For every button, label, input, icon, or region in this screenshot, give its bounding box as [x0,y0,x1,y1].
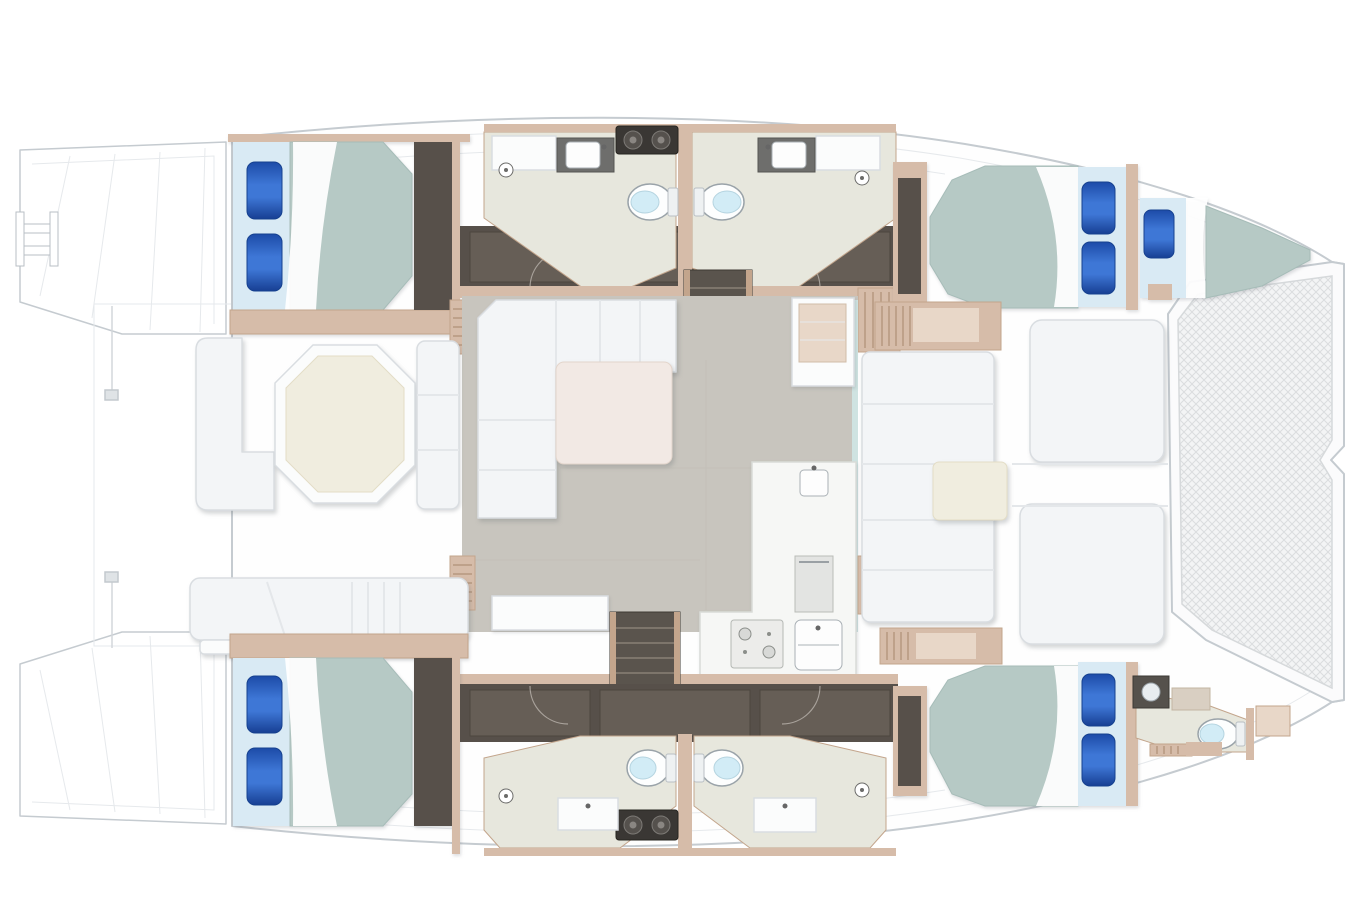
appliance-knob-center [630,822,637,829]
foredeck-hatch-starboard [880,628,1002,664]
toilet-lid [714,757,740,779]
cabin-wall [452,656,460,854]
pillow [1082,734,1115,786]
nav-cabinet [792,298,854,386]
dishwasher [795,556,833,612]
sunpad-bottom [1020,504,1164,644]
bow-locker [1256,706,1290,736]
toilet-lid [1200,724,1224,744]
saloon [450,296,900,688]
burner [739,628,751,640]
corridor-panel [600,690,750,736]
toilet-tank [1236,722,1245,746]
shower-icon-dot [860,788,864,792]
burner [763,646,775,658]
shower-icon-dot [504,168,508,172]
faucet [816,626,821,631]
pillow [247,234,282,291]
appliance-knob-center [658,822,665,829]
sink-basin [566,142,600,168]
pillow [1082,242,1115,294]
faucet [586,804,591,809]
heads-top-wall [484,124,896,132]
faucet [783,804,788,809]
bed-headboard [230,310,468,334]
head-wall [1246,708,1254,760]
foredeck-hatch-port [875,302,1001,350]
pillow [1082,674,1115,726]
aft-cabin-port [228,134,470,336]
aft-cockpit [190,338,468,654]
heads-starboard [484,734,896,856]
toilet-tank [668,188,678,216]
burner-dot [743,650,747,654]
burner-dot [767,632,771,636]
floorplan-canvas [0,0,1350,900]
pillow [1144,210,1174,258]
appliance-knob-center [630,137,637,144]
faucet [602,145,607,150]
shower-icon-dot [860,176,864,180]
vanity-cabinet [754,798,816,832]
toilet-tank [666,754,676,782]
wardrobe-interior [898,696,921,786]
faucet [812,466,817,471]
corridor-panel [760,690,890,736]
aft-cabin-starboard [230,634,468,854]
toilet-tank [694,754,704,782]
heads-divider-wall [678,734,692,852]
yacht-floorplan [0,0,1350,900]
step-locker [1150,744,1192,756]
heads-bottom-wall [484,848,896,856]
galley-sink-small [800,470,828,496]
pillow [247,748,282,805]
cockpit-bench-right [417,341,459,509]
companionway-stairs-starboard [610,612,680,688]
cabin-floor-dark [414,142,452,310]
credenza [492,596,608,630]
foredeck-table [933,462,1007,520]
toilet-lid [631,191,659,213]
anchor-locker-trim [1148,284,1172,300]
shower-icon-dot [504,794,508,798]
corridor-starboard [460,684,898,742]
cabin-trim [228,134,470,142]
toilet-tank [694,188,704,216]
wardrobe-interior [898,178,921,294]
bed-headboard [1126,164,1138,310]
bow-trim [1186,742,1222,756]
stove [731,620,783,668]
corridor-panel [470,690,590,736]
toilet-lid [713,191,741,213]
counter [1172,688,1210,710]
bed-headboard [230,634,468,658]
saloon-table [556,362,672,464]
faucet [766,145,771,150]
swim-platform-bottom [20,632,226,824]
pillow [1082,182,1115,234]
toilet-lid [630,757,656,779]
appliance-knob-center [658,137,665,144]
pillow [247,676,282,733]
vanity-cabinet [816,136,880,170]
sink-basin-round [1142,683,1160,701]
vanity-cabinet [558,798,618,830]
cabin-floor-dark [414,658,452,826]
pillow [247,162,282,219]
sink-basin [772,142,806,168]
sunpad-top [1030,320,1164,462]
cockpit-table-top [286,356,404,492]
